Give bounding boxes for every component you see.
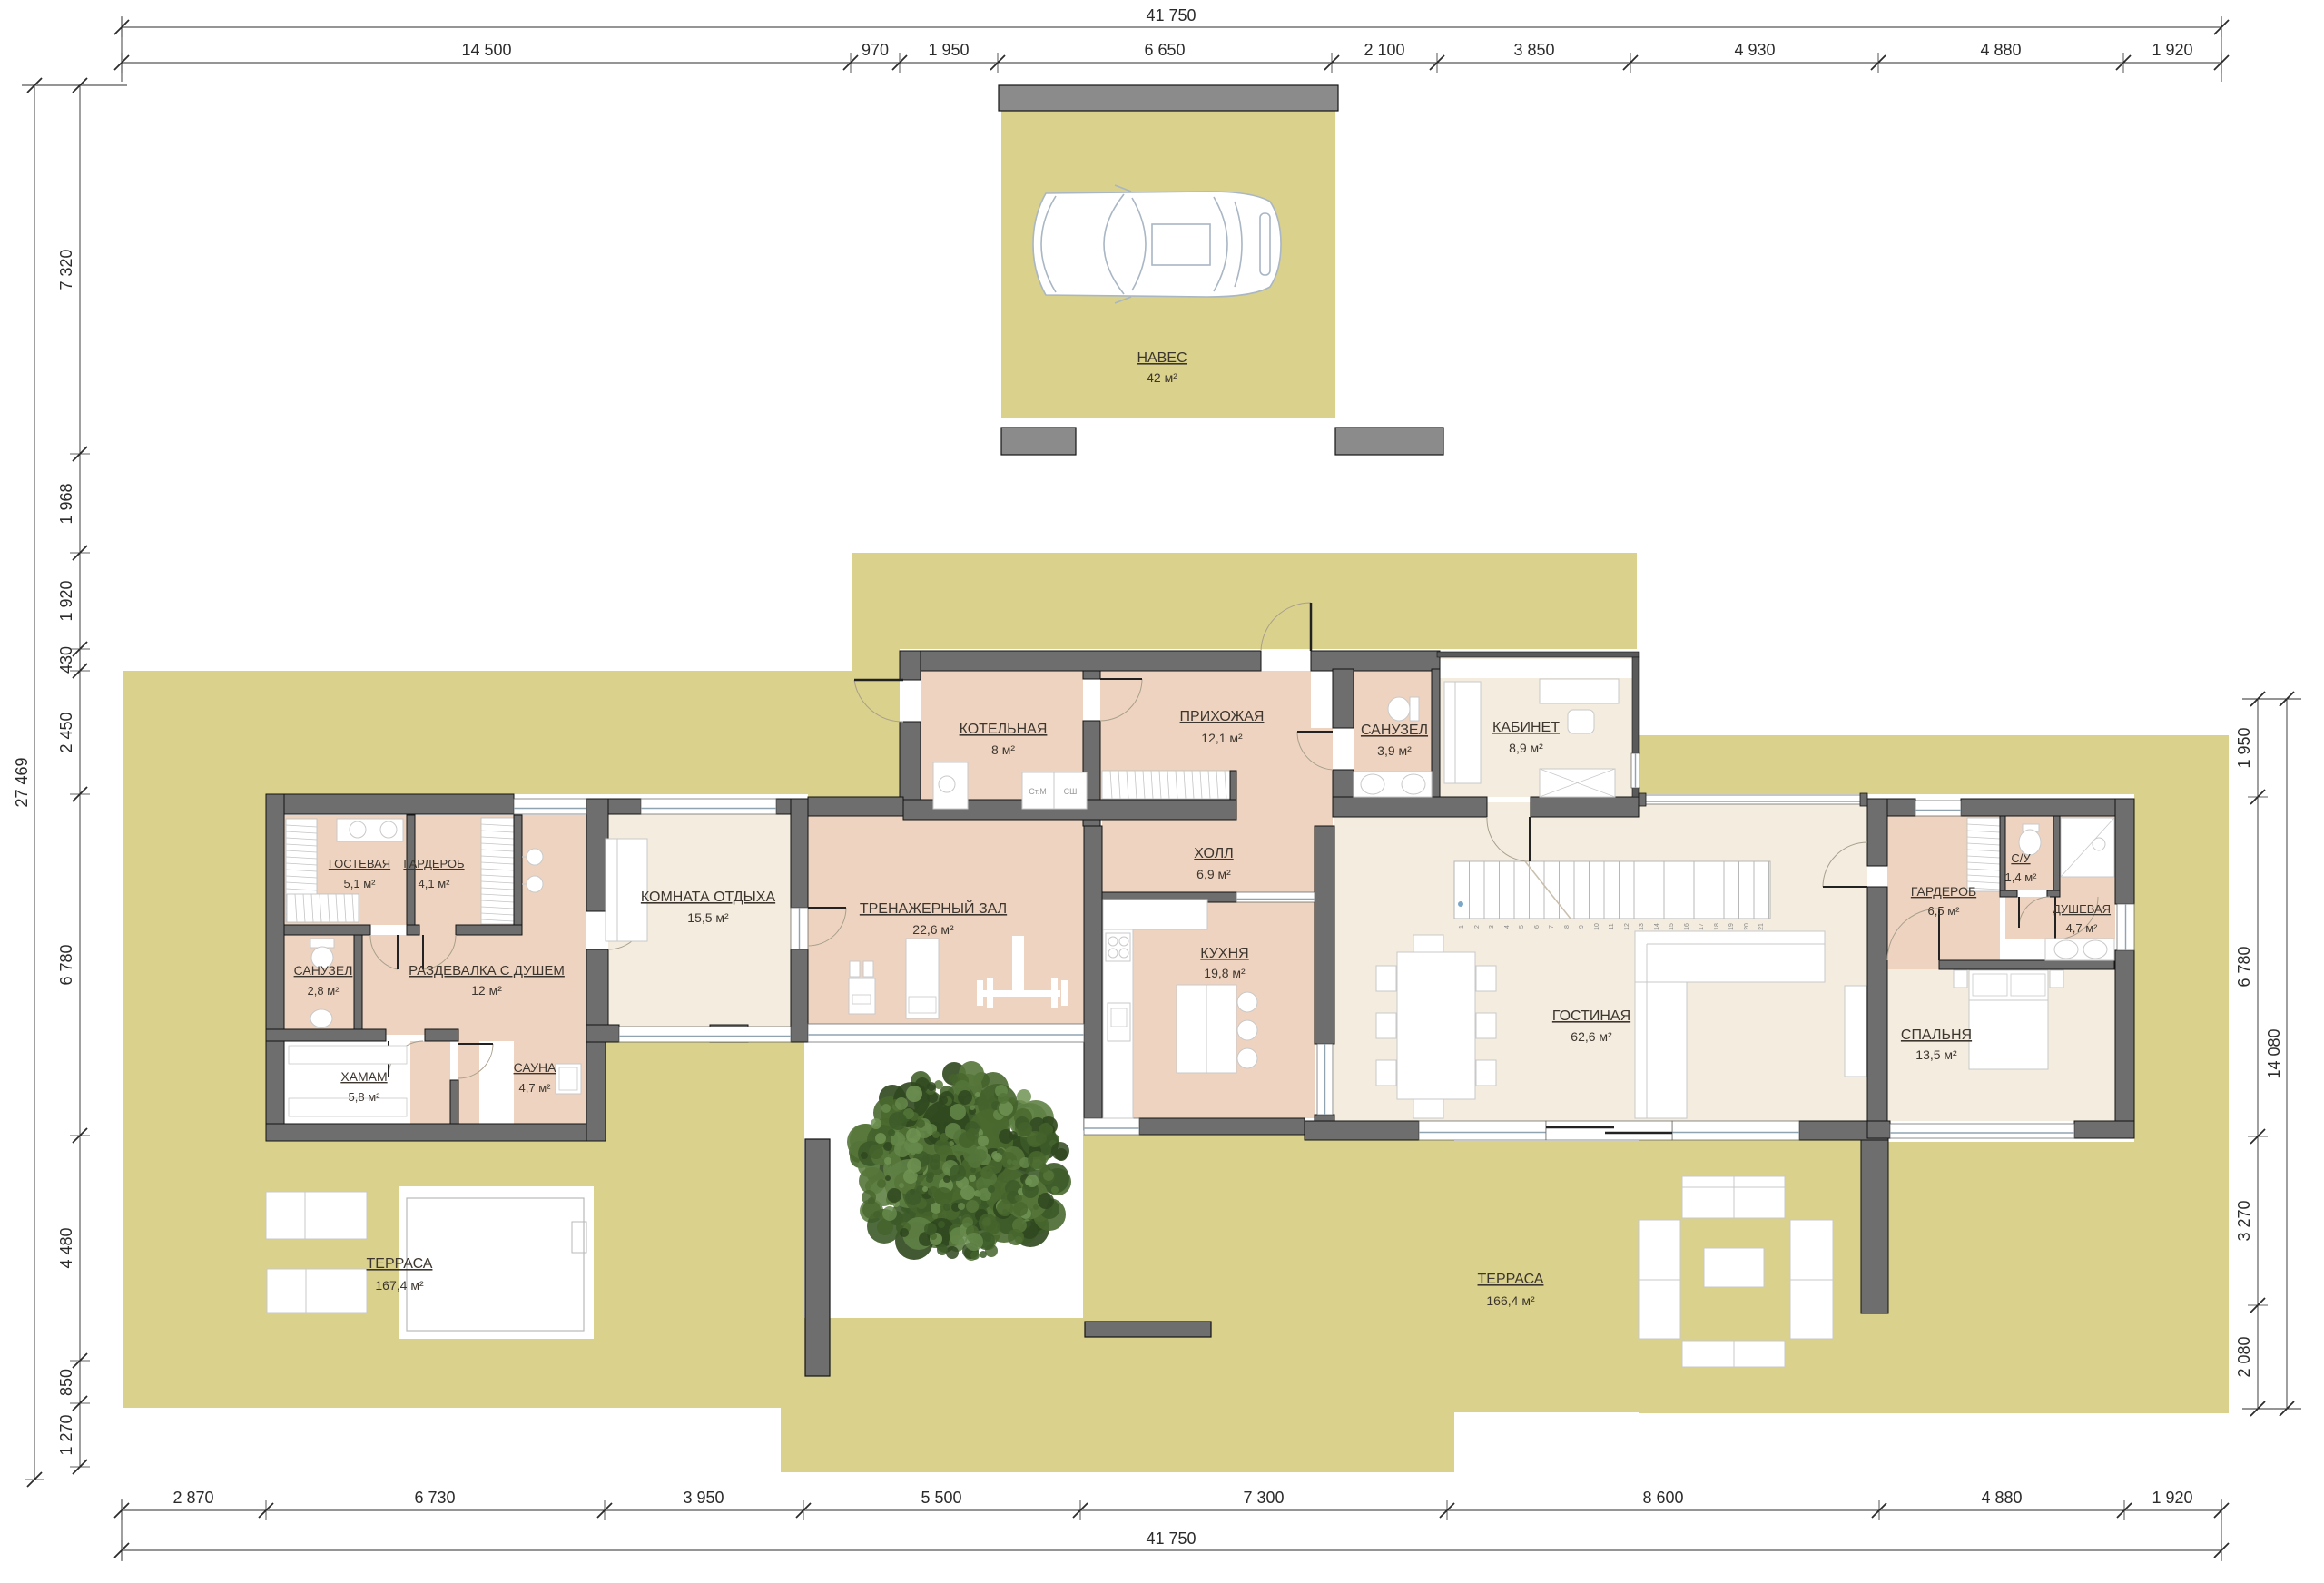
svg-text:КОТЕЛЬНАЯ: КОТЕЛЬНАЯ xyxy=(960,722,1048,737)
svg-text:2: 2 xyxy=(1474,925,1481,929)
svg-text:8,9 м²: 8,9 м² xyxy=(1509,741,1543,755)
svg-text:3: 3 xyxy=(1489,925,1495,929)
svg-text:430: 430 xyxy=(57,646,75,674)
svg-text:10: 10 xyxy=(1594,923,1600,930)
svg-text:15,5 м²: 15,5 м² xyxy=(687,910,729,925)
svg-text:1 950: 1 950 xyxy=(2235,727,2253,768)
svg-text:6 650: 6 650 xyxy=(1144,41,1185,59)
svg-text:6 780: 6 780 xyxy=(2235,946,2253,987)
svg-text:6 780: 6 780 xyxy=(57,944,75,985)
svg-text:3,9 м²: 3,9 м² xyxy=(1377,743,1412,758)
svg-text:15: 15 xyxy=(1669,923,1675,930)
svg-text:СШ: СШ xyxy=(1064,787,1078,796)
svg-text:167,4 м²: 167,4 м² xyxy=(375,1278,424,1293)
svg-text:С/У: С/У xyxy=(2011,851,2031,865)
svg-text:3 850: 3 850 xyxy=(1513,41,1554,59)
svg-text:41 750: 41 750 xyxy=(1146,6,1196,25)
svg-text:ДУШЕВАЯ: ДУШЕВАЯ xyxy=(2053,902,2111,916)
svg-text:2 080: 2 080 xyxy=(2235,1336,2253,1377)
svg-text:ТРЕНАЖЕРНЫЙ ЗАЛ: ТРЕНАЖЕРНЫЙ ЗАЛ xyxy=(860,900,1007,917)
svg-text:7 320: 7 320 xyxy=(57,249,75,290)
svg-text:21: 21 xyxy=(1758,923,1765,930)
svg-text:850: 850 xyxy=(57,1369,75,1396)
svg-text:1,4 м²: 1,4 м² xyxy=(2005,870,2038,884)
svg-text:2 450: 2 450 xyxy=(57,712,75,752)
svg-text:3 950: 3 950 xyxy=(683,1489,724,1507)
svg-text:НАВЕС: НАВЕС xyxy=(1137,350,1187,366)
svg-text:14 080: 14 080 xyxy=(2265,1028,2283,1078)
svg-text:1 968: 1 968 xyxy=(57,483,75,524)
svg-text:КУХНЯ: КУХНЯ xyxy=(1200,946,1248,961)
svg-text:13: 13 xyxy=(1639,923,1645,930)
svg-text:2 100: 2 100 xyxy=(1364,41,1404,59)
svg-text:4 930: 4 930 xyxy=(1734,41,1775,59)
svg-text:5,8 м²: 5,8 м² xyxy=(349,1090,381,1104)
svg-text:2,8 м²: 2,8 м² xyxy=(308,984,340,998)
svg-text:5 500: 5 500 xyxy=(921,1489,961,1507)
svg-text:41 750: 41 750 xyxy=(1146,1529,1196,1548)
svg-text:166,4 м²: 166,4 м² xyxy=(1486,1293,1535,1308)
svg-text:ТЕРРАСА: ТЕРРАСА xyxy=(1478,1272,1544,1287)
svg-text:12,1 м²: 12,1 м² xyxy=(1201,731,1243,745)
svg-text:19,8 м²: 19,8 м² xyxy=(1204,966,1246,980)
svg-text:14 500: 14 500 xyxy=(461,41,511,59)
svg-text:6,5 м²: 6,5 м² xyxy=(1928,904,1961,918)
svg-text:ГОСТИНАЯ: ГОСТИНАЯ xyxy=(1552,1008,1630,1024)
svg-text:20: 20 xyxy=(1744,923,1750,930)
svg-text:ХАМАМ: ХАМАМ xyxy=(340,1069,387,1084)
svg-text:4,7 м²: 4,7 м² xyxy=(519,1081,552,1095)
svg-text:17: 17 xyxy=(1699,923,1705,930)
svg-text:4: 4 xyxy=(1504,925,1511,929)
svg-text:62,6 м²: 62,6 м² xyxy=(1571,1029,1612,1044)
svg-text:КАБИНЕТ: КАБИНЕТ xyxy=(1492,720,1560,735)
svg-text:ПРИХОЖАЯ: ПРИХОЖАЯ xyxy=(1180,709,1265,724)
svg-text:1 920: 1 920 xyxy=(2152,1489,2192,1507)
svg-text:8 600: 8 600 xyxy=(1642,1489,1683,1507)
svg-text:САНУЗЕЛ: САНУЗЕЛ xyxy=(1361,723,1428,738)
svg-text:1 920: 1 920 xyxy=(2152,41,2192,59)
svg-text:Ст.М: Ст.М xyxy=(1029,787,1047,796)
svg-text:11: 11 xyxy=(1609,923,1615,929)
svg-text:СПАЛЬНЯ: СПАЛЬНЯ xyxy=(1901,1027,1972,1043)
svg-text:12: 12 xyxy=(1624,923,1630,930)
svg-text:САНУЗЕЛ: САНУЗЕЛ xyxy=(294,963,353,978)
svg-text:7: 7 xyxy=(1549,925,1555,929)
svg-text:9: 9 xyxy=(1579,925,1585,929)
svg-text:14: 14 xyxy=(1654,923,1660,930)
svg-text:1 920: 1 920 xyxy=(57,580,75,621)
svg-text:12 м²: 12 м² xyxy=(471,983,502,998)
svg-text:1: 1 xyxy=(1459,925,1465,929)
svg-text:970: 970 xyxy=(862,41,889,59)
svg-text:8: 8 xyxy=(1564,925,1571,929)
svg-text:5: 5 xyxy=(1519,925,1525,929)
svg-text:6 730: 6 730 xyxy=(414,1489,455,1507)
svg-text:1 950: 1 950 xyxy=(928,41,969,59)
svg-text:42 м²: 42 м² xyxy=(1147,370,1177,385)
svg-text:5,1 м²: 5,1 м² xyxy=(344,877,377,890)
svg-text:САУНА: САУНА xyxy=(514,1060,557,1075)
svg-text:4,1 м²: 4,1 м² xyxy=(419,877,451,890)
svg-text:7 300: 7 300 xyxy=(1243,1489,1284,1507)
svg-text:РАЗДЕВАЛКА С ДУШЕМ: РАЗДЕВАЛКА С ДУШЕМ xyxy=(409,963,565,978)
svg-text:18: 18 xyxy=(1714,923,1720,930)
svg-text:КОМНАТА ОТДЫХА: КОМНАТА ОТДЫХА xyxy=(641,890,776,905)
svg-text:ТЕРРАСА: ТЕРРАСА xyxy=(367,1256,433,1272)
svg-text:22,6 м²: 22,6 м² xyxy=(912,922,954,937)
svg-text:3 270: 3 270 xyxy=(2235,1200,2253,1241)
svg-text:2 870: 2 870 xyxy=(172,1489,213,1507)
svg-text:19: 19 xyxy=(1728,923,1735,930)
svg-text:ГАРДЕРОБ: ГАРДЕРОБ xyxy=(403,857,464,870)
svg-text:4 880: 4 880 xyxy=(1981,1489,2022,1507)
svg-text:4 480: 4 480 xyxy=(57,1227,75,1268)
svg-text:4,7 м²: 4,7 м² xyxy=(2066,921,2099,935)
svg-text:ХОЛЛ: ХОЛЛ xyxy=(1194,846,1233,861)
svg-text:8 м²: 8 м² xyxy=(991,742,1015,757)
svg-text:ГОСТЕВАЯ: ГОСТЕВАЯ xyxy=(329,857,390,870)
svg-text:27 469: 27 469 xyxy=(13,757,31,807)
svg-text:6: 6 xyxy=(1534,925,1541,929)
svg-text:4 880: 4 880 xyxy=(1980,41,2021,59)
svg-text:16: 16 xyxy=(1684,923,1690,930)
svg-text:13,5 м²: 13,5 м² xyxy=(1915,1047,1957,1062)
svg-text:6,9 м²: 6,9 м² xyxy=(1196,867,1231,881)
svg-text:1 270: 1 270 xyxy=(57,1414,75,1455)
svg-text:ГАРДЕРОБ: ГАРДЕРОБ xyxy=(1911,884,1976,899)
